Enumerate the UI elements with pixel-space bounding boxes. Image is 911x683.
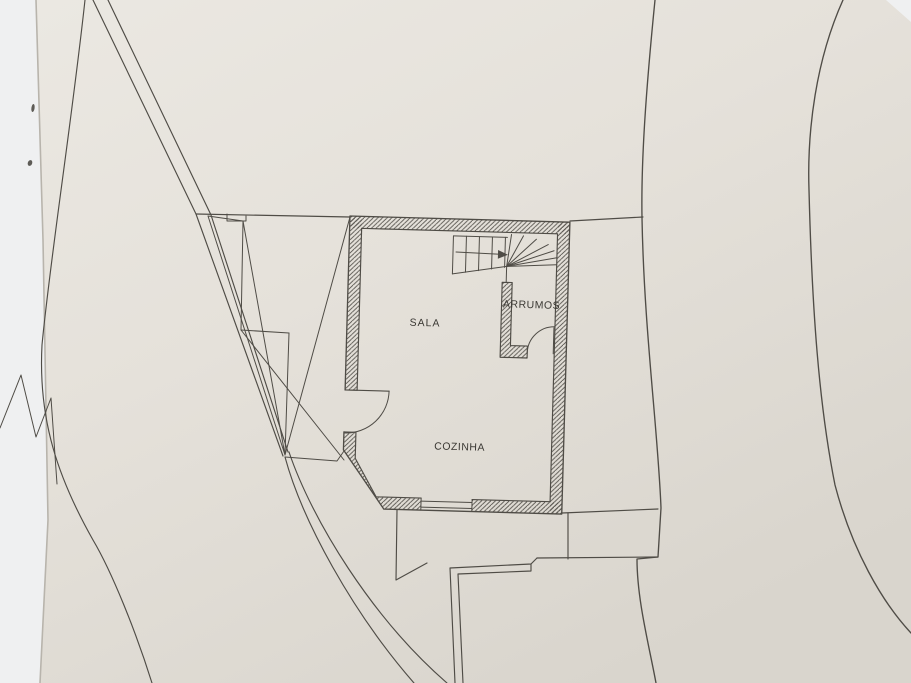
floor-plan-svg: SALA COZINHA ARRUMOS: [0, 0, 911, 683]
paper-sheet: [36, 0, 911, 683]
paper-background: [0, 0, 911, 683]
room-label-cozinha: COZINHA: [434, 440, 485, 453]
room-label-arrumos: ARRUMOS: [503, 298, 560, 312]
room-label-sala: SALA: [409, 317, 440, 330]
scanned-floor-plan: SALA COZINHA ARRUMOS: [0, 0, 911, 683]
